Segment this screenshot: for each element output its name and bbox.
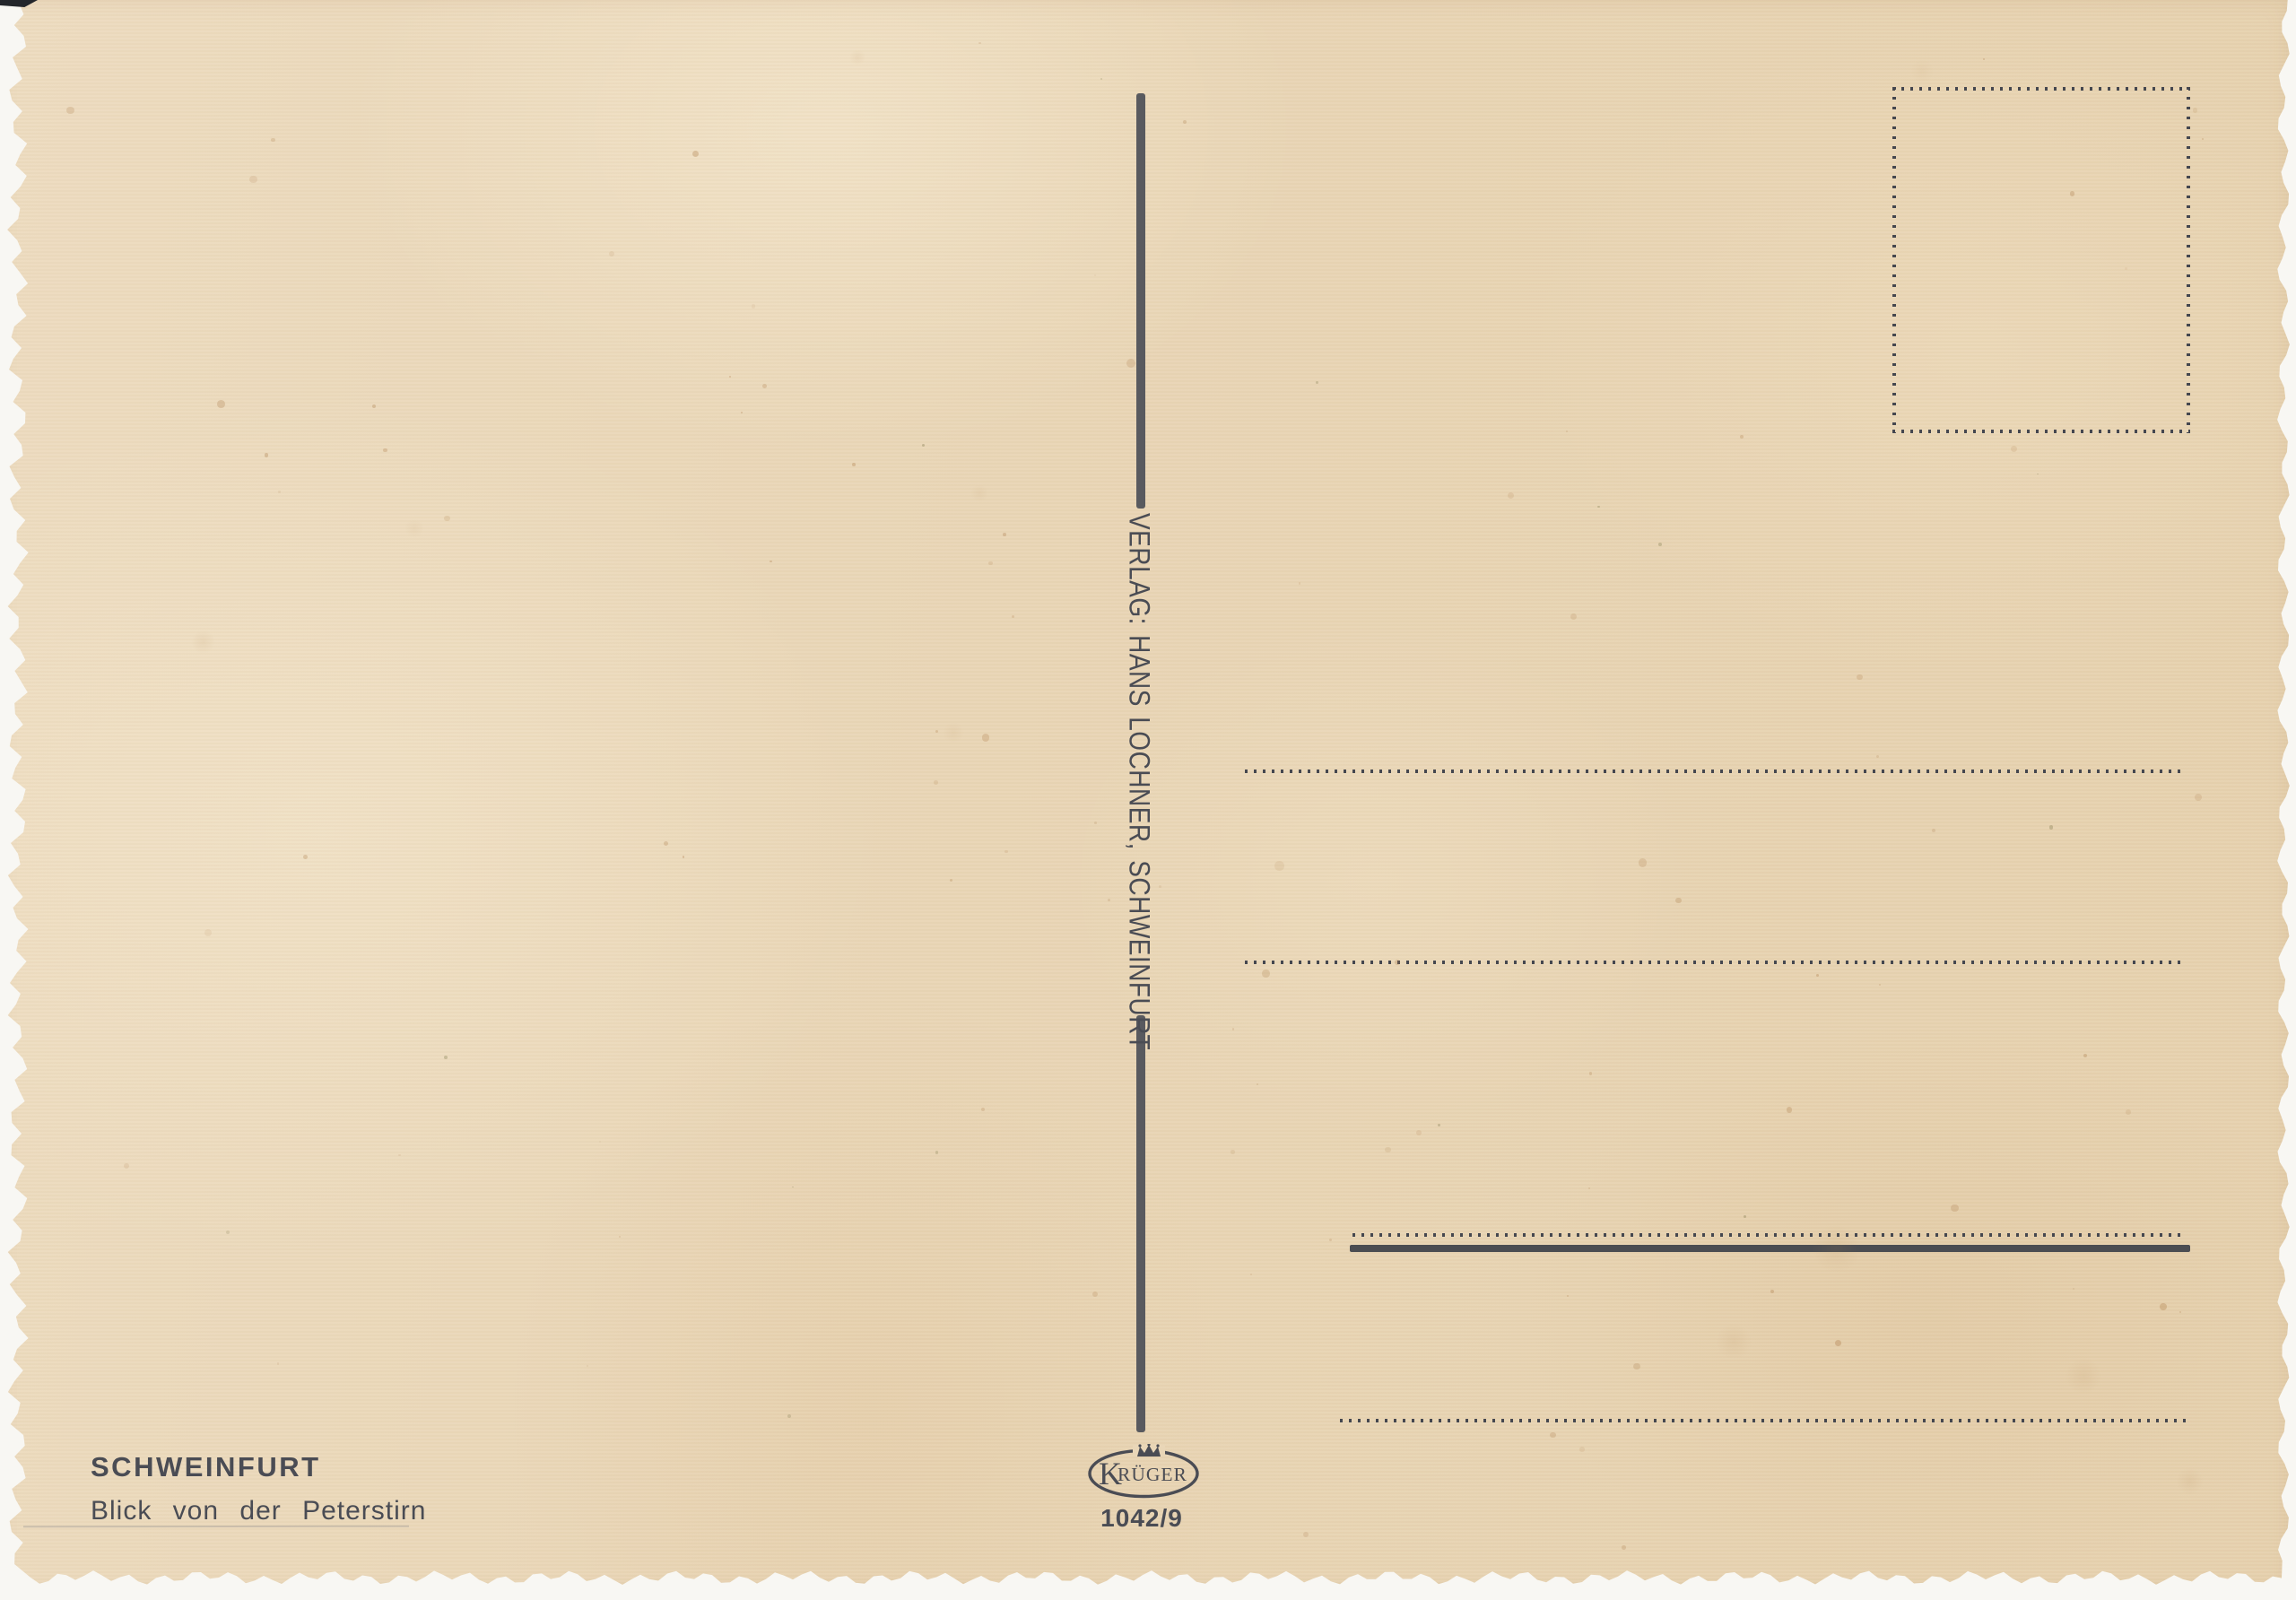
paper-spot: [277, 1362, 280, 1365]
paper-spot: [982, 734, 990, 742]
paper-spot: [849, 49, 865, 65]
paper-spot: [1639, 858, 1647, 866]
divider-upper: [1136, 93, 1145, 509]
paper-spot: [1385, 1147, 1391, 1153]
paper-spot: [2160, 1303, 2167, 1310]
paper-spot: [1579, 1447, 1585, 1452]
postcard-title: SCHWEINFURT: [91, 1451, 426, 1483]
paper-spot: [2073, 1288, 2074, 1290]
scan-streak: [23, 1526, 409, 1528]
paper-spot: [444, 1056, 448, 1059]
paper-spot: [692, 151, 699, 157]
paper-spot: [787, 1414, 791, 1418]
paper-spot: [619, 1236, 621, 1238]
paper-spot: [1910, 59, 1934, 83]
paper-spot: [1100, 78, 1102, 80]
stamp-box: [1892, 87, 2190, 433]
paper-spot: [752, 304, 755, 308]
paper-spot: [981, 1108, 985, 1111]
publisher-logo: K RÜGER: [1081, 1444, 1206, 1501]
paper-spot: [792, 1187, 794, 1188]
paper-spot: [404, 518, 424, 538]
paper-spot: [249, 176, 257, 184]
paper-spot: [1740, 435, 1744, 439]
paper-spot: [1416, 1130, 1422, 1135]
paper-spot: [278, 491, 281, 493]
paper-spot: [1566, 430, 1569, 433]
address-line-4: [1340, 1419, 2186, 1422]
paper-spot: [1589, 1072, 1592, 1074]
paper-spot: [1508, 492, 1514, 499]
paper-spot: [1744, 1215, 1746, 1218]
paper-spot: [1094, 822, 1097, 824]
paper-spot: [1857, 674, 1863, 681]
paper-spot: [124, 1163, 129, 1169]
logo-brand-rest: RÜGER: [1118, 1464, 1187, 1485]
paper-spot: [204, 929, 212, 936]
paper-spot: [1633, 1363, 1640, 1370]
postcard-caption: Blick von der Peterstirn: [91, 1496, 426, 1526]
paper-spot: [1299, 582, 1301, 585]
paper-spot: [265, 453, 268, 457]
paper-spot: [1094, 274, 1096, 276]
paper-spot: [852, 463, 856, 466]
paper-spot: [2179, 1311, 2181, 1313]
paper-spot: [1816, 974, 1819, 977]
order-number: 1042/9: [1079, 1504, 1205, 1533]
paper-spot: [935, 730, 938, 733]
paper-spot: [1274, 861, 1284, 871]
paper-spot: [770, 561, 771, 562]
paper-spot: [1108, 899, 1110, 901]
paper-spot: [609, 251, 614, 257]
paper-spot: [2083, 1054, 2088, 1058]
paper-spot: [1675, 898, 1681, 903]
paper-spot: [1329, 1239, 1333, 1242]
paper-spot: [1951, 1204, 1958, 1212]
paper-spot: [762, 384, 767, 388]
paper-spot: [1570, 613, 1577, 620]
paper-spot: [1658, 543, 1662, 546]
paper-spot: [2049, 825, 2053, 829]
address-line-2: [1245, 961, 2186, 964]
paper-spot: [1770, 1290, 1774, 1293]
address-line-1: [1245, 770, 2186, 773]
paper-spot: [1262, 970, 1270, 978]
caption-block: SCHWEINFURT Blick von der Peterstirn: [91, 1451, 426, 1526]
paper-spot: [271, 138, 275, 143]
paper-spot: [1622, 1545, 1626, 1550]
paper-spot: [1232, 1028, 1235, 1030]
divider-lower: [1136, 1015, 1145, 1432]
crown-icon: [1137, 1444, 1161, 1457]
paper-spot: [1716, 1324, 1752, 1360]
paper-spot: [1231, 1150, 1234, 1153]
paper-spot: [1983, 58, 1985, 60]
paper-spot: [1159, 885, 1161, 888]
paper-spot: [664, 841, 668, 846]
paper-spot: [1126, 359, 1136, 369]
stamp-box-border-bottom: [1892, 430, 2190, 433]
paper-spot: [2202, 138, 2204, 140]
paper-spot: [741, 412, 744, 414]
paper-spot: [398, 1154, 400, 1156]
paper-spot: [970, 484, 988, 502]
paper-spot: [1597, 506, 1599, 508]
paper-spot: [372, 404, 376, 408]
paper-spot: [943, 722, 964, 743]
scanned-postcard-back: VERLAG: HANS LOCHNER, SCHWEINFURT SCHWEI…: [0, 0, 2296, 1600]
paper-spot: [599, 1141, 601, 1143]
paper-spot: [1588, 1187, 1590, 1189]
paper-spot: [1092, 1291, 1098, 1297]
paper-spot: [729, 376, 731, 378]
paper-spot: [988, 561, 992, 565]
paper-spot: [1567, 1295, 1569, 1297]
paper-spot: [1879, 984, 1881, 986]
paper-spot: [1835, 1340, 1841, 1346]
postcard-paper: VERLAG: HANS LOCHNER, SCHWEINFURT SCHWEI…: [0, 0, 2296, 1600]
paper-spot: [934, 780, 938, 785]
paper-spot: [587, 1365, 588, 1367]
paper-spot: [1876, 755, 1879, 758]
paper-spot: [1303, 1532, 1309, 1537]
paper-spot: [1438, 1124, 1440, 1126]
paper-spot: [950, 879, 953, 883]
paper-spot: [1787, 1107, 1792, 1112]
paper-spot: [1257, 1083, 1258, 1085]
paper-spot: [191, 630, 215, 654]
paper-spot: [978, 42, 981, 45]
paper-spot: [2011, 446, 2017, 452]
paper-spot: [2066, 1358, 2102, 1395]
paper-spot: [1550, 1432, 1556, 1439]
paper-spot: [444, 516, 450, 522]
paper-spot: [217, 400, 225, 408]
publisher-imprint: VERLAG: HANS LOCHNER, SCHWEINFURT: [1122, 513, 1155, 1050]
paper-spot: [1250, 1274, 1252, 1275]
paper-spot: [1183, 120, 1187, 124]
paper-spot: [683, 856, 685, 858]
stamp-box-border-right: [2187, 87, 2190, 433]
paper-spot: [935, 1151, 939, 1154]
paper-spot: [303, 855, 308, 859]
paper-spot: [2037, 474, 2039, 475]
address-line-3-solid: [1350, 1245, 2190, 1252]
paper-spot: [1003, 533, 1006, 536]
paper-spot: [2126, 1109, 2131, 1115]
paper-spot: [1012, 615, 1014, 618]
paper-spot: [2176, 1467, 2204, 1495]
paper-spot: [922, 444, 925, 447]
paper-spot: [1004, 850, 1007, 853]
paper-spot: [2195, 794, 2202, 801]
stamp-box-border-left: [1892, 87, 1896, 433]
paper-spot: [383, 448, 387, 453]
paper-spot: [1316, 381, 1318, 384]
address-line-3-dotted: [1352, 1233, 2187, 1237]
paper-spot: [226, 1230, 230, 1234]
paper-spot: [2193, 108, 2197, 112]
paper-spot: [1932, 829, 1936, 833]
paper-spot: [66, 107, 74, 115]
stamp-box-border-top: [1892, 87, 2190, 91]
